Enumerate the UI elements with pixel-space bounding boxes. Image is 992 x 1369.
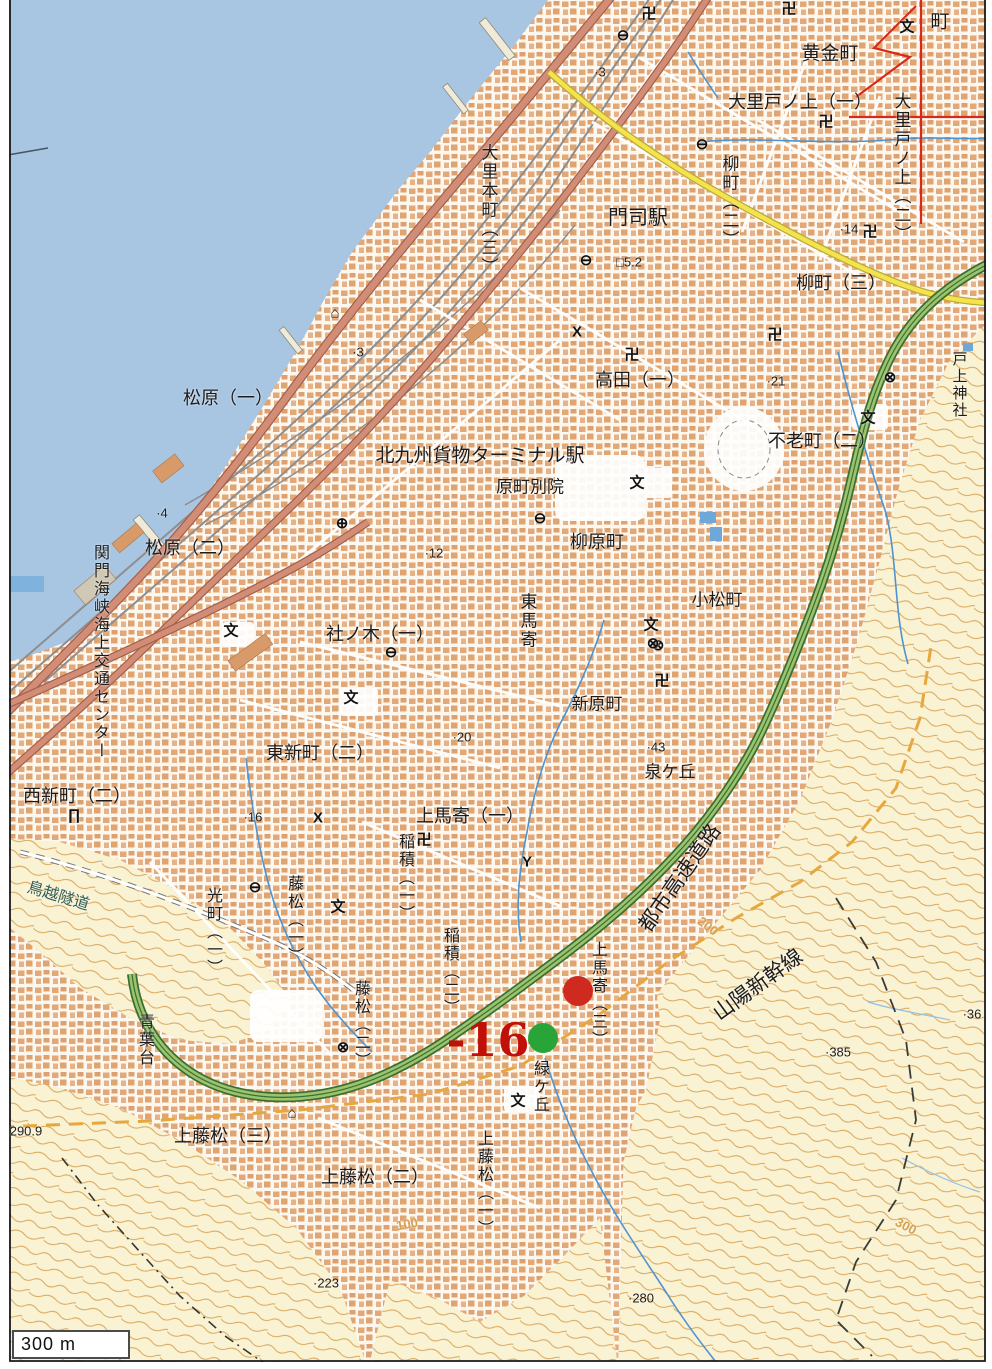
scale-bar: 300 m — [12, 1330, 130, 1359]
map-base-art — [0, 0, 992, 1369]
topographic-map: 黄金町町大里戸ノ上（一）大里戸ノ上（二）柳町（二）柳町（三）大里本町（三）門司駅… — [0, 0, 992, 1369]
scale-bar-label: 300 m — [14, 1334, 76, 1355]
